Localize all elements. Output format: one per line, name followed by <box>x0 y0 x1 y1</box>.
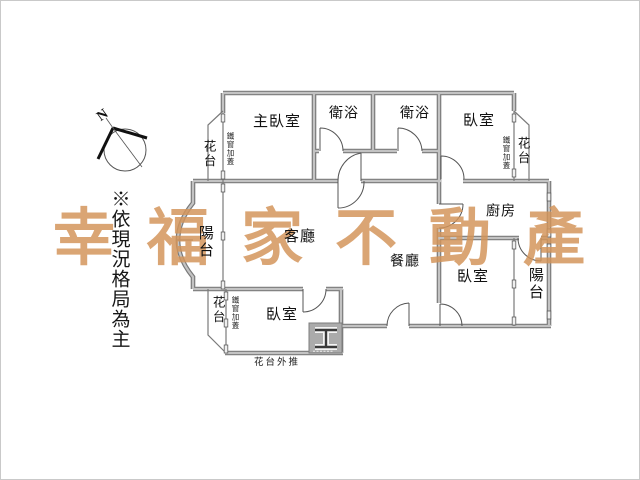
room-label-balcony-left: 陽台 <box>196 225 212 259</box>
room-label-living-room: 客廳 <box>284 230 316 246</box>
compass-icon <box>98 118 147 171</box>
label-iron-window-bottom-left: 鐵窗加蓋 <box>231 296 239 330</box>
room-label-master-bedroom: 主臥室 <box>253 115 301 131</box>
label-flower-bed-top-right: 花台 <box>515 137 528 166</box>
label-flower-bed-top-left: 花台 <box>201 140 214 169</box>
disclaimer-note: ※依現況格局為主 <box>106 189 133 349</box>
label-iron-window-top-left: 鐵窗加蓋 <box>226 132 234 166</box>
room-label-bathroom-2: 衛浴 <box>400 108 430 123</box>
room-label-bedroom-bottom-right: 臥室 <box>457 270 489 286</box>
label-flower-bed-pushed-out: 花台外推 <box>254 359 300 369</box>
room-label-dining-room: 餐廳 <box>390 256 420 271</box>
watermark-text: 幸福家不動產 <box>53 207 617 269</box>
room-label-bathroom-1: 衛浴 <box>329 108 359 123</box>
room-label-bedroom-top-right: 臥室 <box>463 114 495 130</box>
floor-plan-page: 幸福家不動產 N ※依現況格局為主 主臥室 衛浴 衛浴 臥室 廚房 客廳 餐廳 … <box>0 0 640 480</box>
column-symbol <box>309 323 342 353</box>
label-iron-window-top-right: 鐵窗加蓋 <box>502 136 510 170</box>
room-label-kitchen: 廚房 <box>486 206 516 221</box>
room-label-bedroom-bottom-left: 臥室 <box>266 308 298 324</box>
label-flower-bed-bottom-left: 花台 <box>210 296 223 325</box>
room-label-balcony-bottom-right: 陽台 <box>526 267 542 301</box>
